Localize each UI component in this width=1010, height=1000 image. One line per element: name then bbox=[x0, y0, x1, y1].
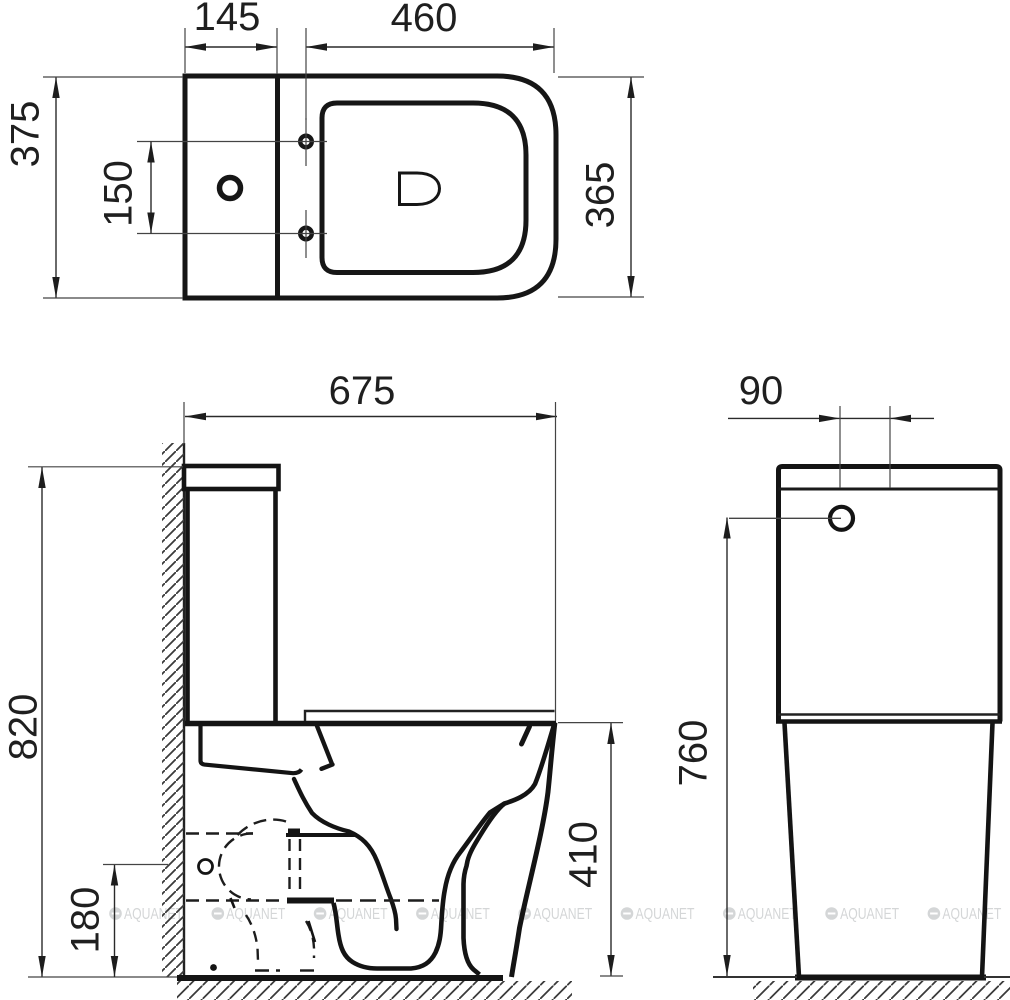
svg-text:AQUANET: AQUANET bbox=[840, 906, 899, 923]
svg-text:150: 150 bbox=[97, 160, 141, 227]
svg-text:AQUANET: AQUANET bbox=[738, 906, 797, 923]
svg-text:375: 375 bbox=[4, 101, 48, 168]
svg-text:460: 460 bbox=[391, 0, 458, 40]
svg-text:365: 365 bbox=[579, 162, 623, 229]
svg-text:410: 410 bbox=[562, 821, 606, 888]
svg-text:675: 675 bbox=[329, 369, 396, 413]
svg-text:AQUANET: AQUANET bbox=[636, 906, 695, 923]
svg-text:145: 145 bbox=[194, 0, 261, 39]
svg-text:760: 760 bbox=[672, 720, 716, 787]
svg-text:820: 820 bbox=[2, 694, 46, 761]
svg-text:AQUANET: AQUANET bbox=[533, 906, 592, 923]
svg-text:180: 180 bbox=[64, 887, 108, 954]
svg-text:AQUANET: AQUANET bbox=[942, 906, 1001, 923]
svg-text:90: 90 bbox=[739, 369, 784, 413]
svg-text:AQUANET: AQUANET bbox=[226, 906, 285, 923]
